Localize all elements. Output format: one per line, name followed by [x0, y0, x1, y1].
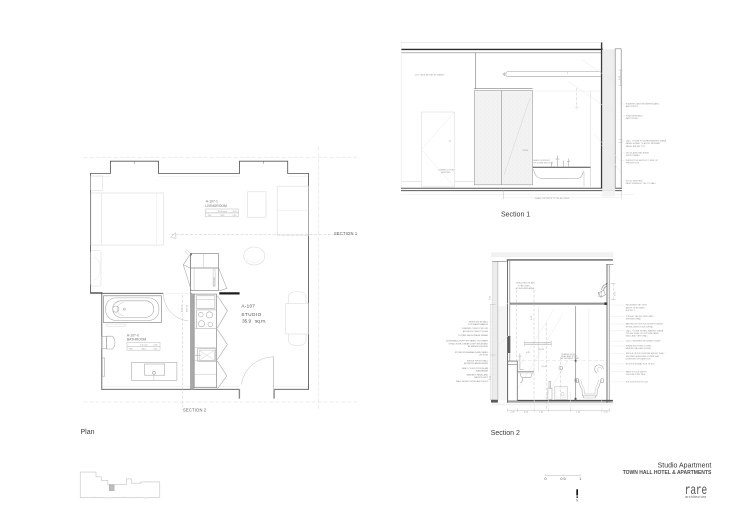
- svg-text:FRONT PANEL: FRONT PANEL: [626, 154, 641, 157]
- svg-text:Section 1: Section 1: [501, 212, 530, 219]
- svg-text:FOR MAINTENANCE: FOR MAINTENANCE: [468, 323, 488, 326]
- svg-text:WALL AND VERT WALL: WALL AND VERT WALL: [626, 335, 649, 338]
- svg-text:SINGLE SPORT WALL: SINGLE SPORT WALL: [467, 359, 489, 362]
- svg-text:COMMS OUTLET: COMMS OUTLET: [438, 169, 455, 171]
- svg-text:7.6 sq.m: 7.6 sq.m: [140, 345, 148, 347]
- svg-text:2X4 GLAZED BACKSIDE: 2X4 GLAZED BACKSIDE: [626, 151, 650, 154]
- svg-text:SHOWER MIXER AND THREE WAY: SHOWER MIXER AND THREE WAY: [626, 355, 660, 358]
- svg-text:PLUG: PLUG: [523, 150, 529, 152]
- svg-text:AT SHOWER AREA: AT SHOWER AREA: [516, 287, 535, 290]
- svg-text:BATHROOM: BATHROOM: [127, 338, 147, 342]
- svg-text:AND SUPPLY: AND SUPPLY: [626, 105, 639, 108]
- svg-text:WOOD SKIRTING: WOOD SKIRTING: [626, 181, 643, 183]
- svg-text:RECESSED SECTION: RECESSED SECTION: [626, 305, 647, 307]
- svg-text:WALL HUNG PORCELAIN TOILET: WALL HUNG PORCELAIN TOILET: [456, 380, 489, 383]
- svg-text:MIRROR UNIT: MIRROR UNIT: [474, 377, 488, 379]
- svg-text:Studio Apartment: Studio Apartment: [658, 463, 712, 470]
- svg-text:CUT TILES IN LINE W/ SHADE: CUT TILES IN LINE W/ SHADE: [415, 74, 444, 77]
- svg-text:WASHBASIN: WASHBASIN: [476, 370, 489, 373]
- svg-text:Plan: Plan: [81, 429, 95, 436]
- svg-text:HEATED RAIL AND FIXING: HEATED RAIL AND FIXING: [626, 347, 652, 350]
- svg-text:SOLID BOX EXIT PLUS: SOLID BOX EXIT PLUS: [626, 381, 649, 383]
- svg-text:SECTION 2: SECTION 2: [183, 407, 207, 412]
- svg-text:SERVICES IN WALL: SERVICES IN WALL: [469, 321, 489, 324]
- svg-text:STAINLESS STEEL TOWEL: STAINLESS STEEL TOWEL: [626, 345, 653, 348]
- svg-text:AT SHOWER TRAY: AT SHOWER TRAY: [561, 357, 580, 360]
- svg-text:X-STEEL ANCHORAGE SHEAR: X-STEEL ANCHORAGE SHEAR: [458, 334, 488, 337]
- svg-text:SUPPLY 1: SUPPLY 1: [626, 310, 636, 312]
- svg-text:Section 2: Section 2: [491, 430, 520, 437]
- svg-text:PLASTERBOARD: PLASTERBOARD: [626, 115, 643, 118]
- svg-text:12mm. BRUSHED SECURED GLASS: 12mm. BRUSHED SECURED GLASS: [626, 340, 661, 343]
- svg-text:PANEL HONED TO AVOID SIDEWAY: PANEL HONED TO AVOID SIDEWAY: [626, 142, 661, 145]
- svg-text:ARCHITECT MUST TILING: ARCHITECT MUST TILING: [463, 330, 489, 333]
- svg-text:35.9 sq.m: 35.9 sq.m: [218, 211, 227, 213]
- svg-text:LIVINGROOM: LIVINGROOM: [205, 204, 227, 208]
- svg-text:OBSCURED GLASS: OBSCURED GLASS: [516, 282, 536, 285]
- svg-text:BATHROOM OUR ROOM MIRT DEMIST: BATHROOM OUR ROOM MIRT DEMIST: [626, 323, 664, 326]
- svg-text:INSPECTION HATCH TO SIDE OF: INSPECTION HATCH TO SIDE OF: [626, 159, 659, 162]
- svg-text:sq.m.: sq.m.: [255, 319, 266, 324]
- svg-text:architecture: architecture: [685, 495, 706, 499]
- svg-text:X-STEEL VALVES W/ROTARY: X-STEEL VALVES W/ROTARY: [626, 315, 655, 318]
- svg-text:HARD STOCK WATTS: HARD STOCK WATTS: [626, 370, 648, 373]
- svg-text:CALC. STONE POLISHED/SANDED DI: CALC. STONE POLISHED/SANDED DIANA: [626, 140, 667, 143]
- svg-text:PRECEPTION: PRECEPTION: [626, 163, 640, 165]
- svg-text:MOUNTED BASIN MIXER: MOUNTED BASIN MIXER: [464, 362, 489, 365]
- svg-text:0.5: 0.5: [560, 476, 566, 481]
- svg-text:GROUND PIPE SIDE: GROUND PIPE SIDE: [626, 374, 646, 376]
- svg-text:SECTION 1: SECTION 1: [334, 231, 358, 236]
- svg-text:DIVERTER UPSTAIRS 100: DIVERTER UPSTAIRS 100: [626, 358, 652, 361]
- svg-text:RUBBISH CARTON WATERGUARD: RUBBISH CARTON WATERGUARD: [626, 102, 660, 105]
- svg-text:KITCHEN: KITCHEN: [214, 276, 216, 286]
- svg-text:OF GLASS SECTION: OF GLASS SECTION: [533, 162, 553, 165]
- svg-text:VANITARY PANEL AND: VANITARY PANEL AND: [466, 373, 488, 376]
- svg-text:SHELF ON UNITS TO 700 SE X BOX: SHELF ON UNITS TO 700 SE X BOX: [535, 198, 570, 200]
- svg-text:SILVERBACK SUPPORT PANEL ON TI: SILVERBACK SUPPORT PANEL ON TIMBER: [446, 340, 489, 343]
- svg-text:STRUCTURE, LINEAR LIGHT RECESS: STRUCTURE, LINEAR LIGHT RECESSED: [448, 342, 488, 345]
- svg-text:A-107-1: A-107-1: [206, 200, 218, 204]
- svg-text:A/B W/ TICKET AND: A/B W/ TICKET AND: [626, 306, 645, 309]
- svg-text:PLASTER COMPLY W/ FOR: PLASTER COMPLY W/ FOR: [462, 327, 489, 330]
- svg-text:SKIRTING: SKIRTING: [441, 172, 451, 174]
- svg-text:TOWN HALL HOTEL & APARTMENTS: TOWN HALL HOTEL & APARTMENTS: [623, 470, 712, 476]
- svg-text:SHOWER HEAD: SHOWER HEAD: [626, 318, 642, 321]
- svg-text:GRA 1 CLOUD PORCELAIN: GRA 1 CLOUD PORCELAIN: [462, 367, 489, 370]
- svg-text:POLISH SLAB ON GYPSUM PANEL: POLISH SLAB ON GYPSUM PANEL: [626, 332, 660, 335]
- svg-text:TO BE USED: TO BE USED: [518, 285, 531, 287]
- svg-text:R1.20: R1.20: [539, 349, 545, 351]
- svg-text:AT BATHROOM SIDE: AT BATHROOM SIDE: [468, 345, 489, 348]
- svg-text:A-107-0: A-107-0: [181, 304, 184, 312]
- svg-text:ROUTED SIGNAL FOR TILING: ROUTED SIGNAL FOR TILING: [626, 362, 655, 365]
- svg-text:PAINT FINISH FITTED TO WALL: PAINT FINISH FITTED TO WALL: [626, 182, 657, 185]
- svg-text:ON GLUE: ON GLUE: [479, 355, 489, 357]
- svg-text:PANEL BRIGHT TOP: PANEL BRIGHT TOP: [626, 145, 646, 148]
- svg-text:35.9: 35.9: [242, 319, 251, 324]
- svg-text:EXTRA UNION STUD DETAIL: EXTRA UNION STUD DETAIL: [626, 325, 654, 328]
- svg-text:05.00: 05.00: [542, 366, 548, 368]
- svg-text:CALC. STONE HONED SANDED DIANA: CALC. STONE HONED SANDED DIANA: [626, 329, 664, 332]
- svg-text:A-107: A-107: [241, 304, 255, 309]
- svg-text:STUDIO: STUDIO: [241, 312, 261, 317]
- svg-text:PARTITIONS: PARTITIONS: [626, 117, 639, 120]
- svg-text:STONE SPLASHBACK AND PANEL: STONE SPLASHBACK AND PANEL: [455, 351, 489, 354]
- svg-text:W12 90: W12 90: [187, 304, 189, 312]
- svg-text:SINGLE LEVER CHROME BRIGHT EAS: SINGLE LEVER CHROME BRIGHT EASY: [626, 352, 665, 355]
